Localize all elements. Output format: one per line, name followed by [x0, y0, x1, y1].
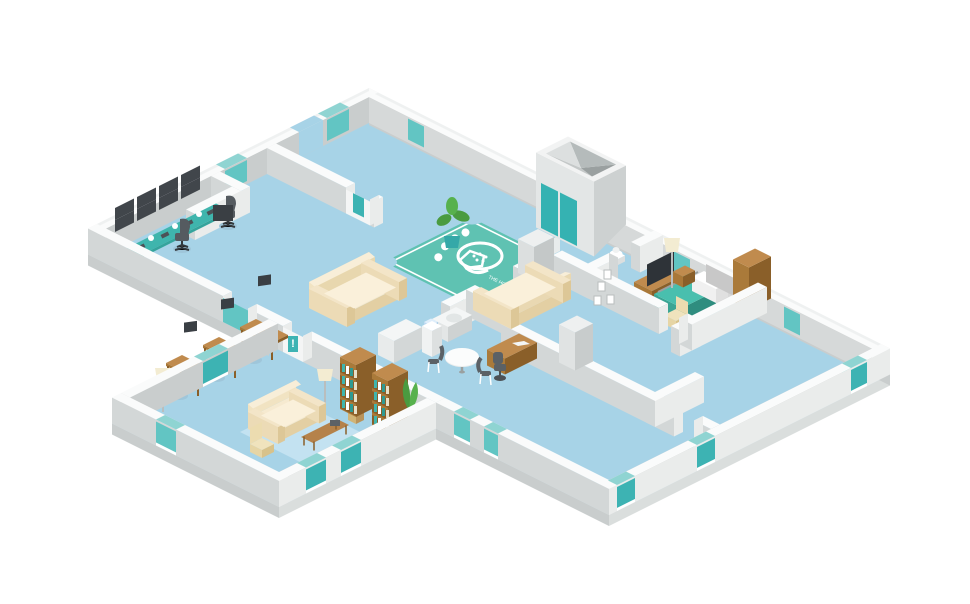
svg-text:!: ! [291, 338, 295, 350]
